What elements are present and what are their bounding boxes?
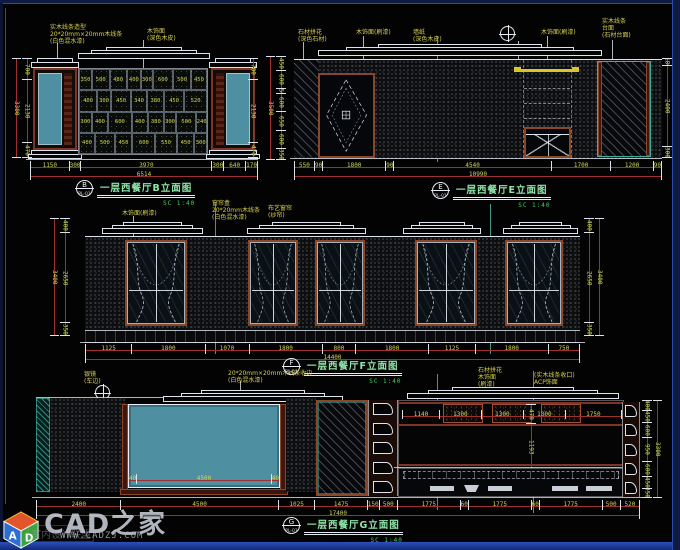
rack-cell-dim: 600 [132,133,155,154]
floor-line [290,158,662,159]
mirror-base [120,489,288,495]
wood-rail [398,424,624,426]
dim-value: 600 [276,130,286,148]
dim-total: 3400 [595,218,604,336]
shelf-bracket [572,67,579,72]
cabinet-divider [548,134,549,156]
window [125,240,187,326]
rack-cell-dim: 450 [191,69,207,90]
mirror-frame-strip [646,62,650,156]
rack-row: 400300450340380450520 [79,90,207,111]
annotation-text: 木饰面(刷漆) [356,29,391,36]
annotation-line: 实木线条造型 [50,24,122,31]
sheet-edge-left [0,3,3,542]
counter-dash-row [403,471,619,479]
stone-wall [50,398,126,492]
sheet-edge-top [0,0,680,4]
annotation-line: 布艺窗帘 [268,205,292,212]
dim-total: 10990 [294,170,662,180]
bubble-letter: F [284,359,299,367]
rack-cell-dim: 300 [79,112,92,133]
dim-value: 700 [22,58,32,79]
dim-value: 450 [642,410,652,422]
rack-cell-dim: 300 [141,69,152,90]
title-text: 一层西餐厅F立面图 [304,358,402,374]
column-wood-strip [216,73,224,145]
dimension-column: 400450600950600450350 [642,400,652,498]
annotation-line: (实木线条收口) [534,372,575,379]
rack-cell-dim: 550 [155,133,176,154]
rack-cell-dim: 380 [148,112,164,133]
dimension-row: 11401300130013001750 [402,410,622,419]
crown-molding [102,222,203,234]
drawing-title-E: EPL-01 一层西餐厅E立面图SC 1:40 [432,182,551,209]
carved-pilaster [622,402,640,497]
carved-pier [294,60,319,157]
shelf-line [524,118,570,119]
annotation-text: 木饰面(刷漆) [122,210,157,217]
title-scale: SC 1:40 [97,200,195,207]
wine-rack: 350500480400300600500450 400300450340380… [78,68,208,155]
annotation-text: 木饰面(深色木皮) [147,28,176,42]
rack-cell-dim: 300 [194,133,207,154]
rack-cell-dim: 240 [196,112,207,133]
dim-value: 450 [276,56,286,70]
title-text-block: 一层西餐厅F立面图SC 1:40 [304,358,402,385]
dimension-column: 3500 [266,56,275,160]
floor-line [32,497,644,498]
dim-total: 3300 [653,400,662,498]
annotation-line: 木饰面(刷漆) [122,210,157,217]
crown-molding [318,44,602,56]
dimension-column: 450600150600650600350 [276,56,286,160]
dim-value: 600 [276,93,286,111]
dim-value: 600 [642,461,652,476]
annotation-text: 窗帘盒20*20mm木线条(白色混水漆) [212,200,260,221]
rack-cell-dim: 400 [79,90,97,111]
dim-value: 950 [642,437,652,461]
column-glass-panel [38,73,62,145]
dim-value: 40 [128,474,136,484]
dimension-row: 6514 [30,170,258,180]
dimension-column: 3400 [50,218,59,336]
dim-value: 350 [276,148,286,160]
bubble-letter: G [284,518,299,526]
column-shaft [33,68,77,150]
dim-value: 470 [526,404,536,423]
counter-door [586,486,612,491]
dim-value: 400 [60,218,70,232]
annotation-text: 石材拼花(深色石材) [298,29,327,43]
dimension-row: 40450040 [128,474,280,484]
title-text-block: 一层西餐厅B立面图SC 1:40 [97,180,195,207]
annotation-line: (纱帘) [268,212,292,219]
curtain-drawing [250,242,296,324]
crown-molding [247,222,366,234]
dim-value: 400 [584,218,594,232]
crown-molding [78,47,210,59]
dimension-column: 7002130470 [22,58,32,158]
dim-value: 4500 [136,474,271,484]
sheet-edge-right [672,0,680,550]
curtain-drawing [417,242,475,324]
dim-value: 180 [662,58,672,65]
annotation-text: 实木线条造型20*20mm×20mm木线条(白色混水漆) [50,24,122,45]
cabinet-edge-dashed [571,60,572,158]
rack-cell-dim: 350 [79,69,92,90]
dim-total: 6514 [30,170,258,180]
watermark: A D 室内设计联盟 CAD之家 WWW.CADZJ.COM [2,502,212,548]
dim-value: 1300 [481,410,523,419]
annotation-line: 台面 [602,25,631,32]
tall-mirror-panel [316,400,368,496]
dim-value: 450 [642,476,652,488]
sheet-margin-line [5,8,6,504]
annotation-line: ACP饰面 [534,379,575,386]
counter-door [552,486,578,491]
annotation-text: 银镜(车边) [84,371,101,385]
dimension-column: 3400 [595,218,604,336]
door-diamond-pattern [320,75,373,156]
dim-value: 470 [248,142,258,158]
dim-value: 350 [642,488,652,498]
rack-cell-dim: 600 [108,112,132,133]
dim-value: 470 [22,142,32,158]
curtain-drawing [127,242,185,324]
title-scale: SC 1:40 [304,537,403,544]
dimension-column: 3300 [653,400,662,498]
rack-cell-dim: 400 [127,69,142,90]
crown-molding [403,222,481,234]
dimension-column: 4002650350 [584,218,594,336]
stone-pier [286,398,316,492]
door-panel [318,73,375,158]
dim-value: 1300 [439,410,481,419]
annotation-line: 窗帘盒 [212,200,260,207]
column-glass-panel [226,73,250,145]
crown-molding [503,222,578,234]
watermark-site-text: WWW.CADZJ.COM [60,531,143,541]
dimension-row: 10990 [294,170,662,180]
title-scale: SC 1:40 [304,378,402,385]
title-text-block: 一层西餐厅G立面图SC 1:40 [304,517,403,544]
mirror-panel [597,61,651,157]
title-text: 一层西餐厅E立面图 [453,182,551,198]
annotation-line: (深色木皮) [147,35,176,42]
title-text: 一层西餐厅B立面图 [97,180,195,196]
dim-value: 2130 [248,79,258,142]
crown-molding [407,387,619,399]
annotation-line: 20*20mm×20mm木线条 [50,31,122,38]
rack-cell-dim: 300 [97,90,111,111]
rack-cell-dim: 520 [184,90,207,111]
rack-cell-dim: 400 [92,112,108,133]
title-bubble: BPL-01 [76,180,93,197]
curtain-drawing [317,242,363,324]
rack-cell-dim: 380 [147,90,164,111]
highlighted-shelf [518,69,574,72]
rack-cell-dim: 300 [164,112,177,133]
dimension-column: 4002650350 [60,218,70,336]
carved-pilaster [368,400,398,496]
dim-value: 600 [642,422,652,437]
dim-total: 3500 [266,56,275,160]
dimension-column: 3300 [12,58,21,158]
rack-cell-dim: 500 [95,133,115,154]
floor-line [80,342,585,343]
window [248,240,298,326]
rack-cell-dim: 450 [111,90,131,111]
bubble-ref: PL-01 [74,192,95,198]
rack-cell-dim: 450 [164,90,184,111]
column-wood-strip [64,73,72,145]
annotation-line: 石材拼花 [478,367,502,374]
cube-letter-front: A [9,531,18,543]
rack-cell-dim: 500 [92,69,110,90]
dim-value: 2400 [662,65,672,146]
dimension-column: 7002130470 [248,58,258,158]
mirror-frame-strip [598,62,602,156]
rack-cell-dim: 450 [177,133,195,154]
dim-value: 2130 [22,79,32,142]
annotation-line: 银镜 [84,371,101,378]
annotation-line: 石材拼花 [298,29,327,36]
dim-value: 700 [248,58,258,79]
floor-line [26,159,258,160]
dim-value: 350 [584,322,594,336]
rack-cell-dim: 500 [176,112,196,133]
annotation-line: 实木线条 [602,18,631,25]
annotation-line: 墙纸 [413,29,442,36]
annotation-text: 石材拼花木饰面(刷漆) [478,367,502,388]
rack-cell-dim: 400 [132,112,148,133]
bubble-ref: PL-01 [430,194,451,200]
dim-value: 400 [642,400,652,410]
annotation-line: 20*20mm木线条 [212,207,260,214]
dim-total: 3400 [50,218,59,336]
rack-row: 350500480400300600500450 [79,69,207,90]
bubble-ref: PL-01 [281,529,302,535]
annotation-line: 木饰面 [478,374,502,381]
dim-value: 40 [271,474,280,484]
dim-value: 1750 [565,410,622,419]
title-bubble: EPL-01 [432,182,449,199]
tiled-pier [36,398,50,492]
dim-value: 1140 [402,410,439,419]
rack-cell-dim: 400 [79,133,95,154]
annotation-line: 木饰面 [147,28,176,35]
dim-total: 3300 [12,58,21,158]
rack-row: 300400600400380300500240 [79,112,207,133]
annotation-line: 20*20mm×20mm木线条收边 [228,370,312,377]
dim-value: 600 [276,70,286,88]
bubble-letter: B [77,181,92,189]
counter-rail [398,464,624,466]
annotation-line: 木饰面(刷漆) [356,29,391,36]
rack-cell-dim: 340 [131,90,147,111]
counter-door [430,486,454,491]
annotation-line: (车边) [84,378,101,385]
drawing-title-B: BPL-01 一层西餐厅B立面图SC 1:40 [76,180,195,207]
counter-door [488,486,512,491]
shelf-line [524,88,570,89]
window [415,240,477,326]
window [505,240,563,326]
annotation-text: 木饰面(刷漆) [541,29,576,36]
annotation-text: (实木线条收口)ACP饰面 [534,372,575,386]
sideboard-cabinet [524,127,571,158]
dimension-column: 1802400300 [662,58,672,158]
detail-callout-bubble [500,26,515,41]
title-bubble: GPL-01 [283,517,300,534]
dim-value: 2650 [60,232,70,322]
drawing-title-G: GPL-01 一层西餐厅G立面图SC 1:40 [283,517,403,544]
rack-cell-dim: 500 [173,69,191,90]
bubble-letter: E [433,183,448,191]
rack-cell-dim: 450 [115,133,133,154]
cad-sheet: 实木线条造型20*20mm×20mm木线条(白色混水漆) 木饰面(深色木皮) 3… [0,0,680,550]
title-text-block: 一层西餐厅E立面图SC 1:40 [453,182,551,209]
rack-cell-dim: 600 [153,69,174,90]
shelf-line [524,103,570,104]
dim-value: 2650 [584,232,594,322]
dim-value: 650 [276,111,286,130]
dim-value: 300 [662,146,672,158]
annotation-text: 实木线条台面(石材台面) [602,18,631,39]
curtain-drawing [507,242,561,324]
annotation-line: (白色混水漆) [50,38,122,45]
annotation-text: 布艺窗帘(纱帘) [268,205,292,219]
annotation-line: 木饰面(刷漆) [541,29,576,36]
title-text: 一层西餐厅G立面图 [304,517,403,533]
dim-value: 350 [60,322,70,336]
annotation-line: (石材台面) [602,32,631,39]
annotation-line: (白色混水漆) [212,214,260,221]
rack-cell-dim: 480 [110,69,127,90]
shelf-bracket [514,67,521,72]
title-scale: SC 1:40 [453,202,551,209]
rack-row: 400500450600550450300 [79,133,207,154]
window [315,240,365,326]
